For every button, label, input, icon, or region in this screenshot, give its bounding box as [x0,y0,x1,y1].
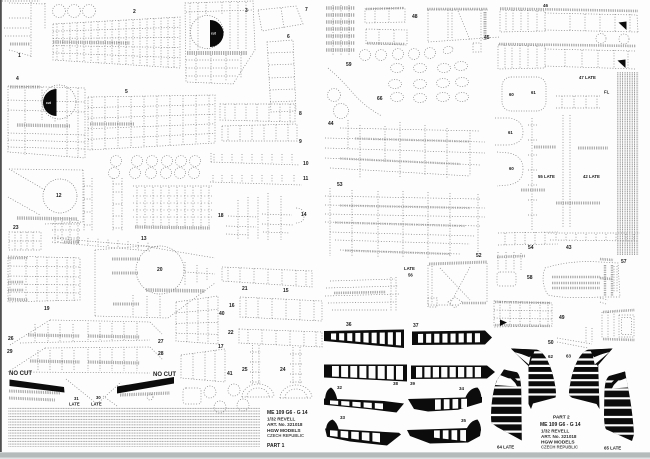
svg-text:12: 12 [56,193,62,199]
svg-text:21: 21 [242,286,248,292]
svg-text:ME 109 G6 - G 14: ME 109 G6 - G 14 [540,422,581,428]
svg-text:58: 58 [527,275,533,281]
svg-text:19: 19 [44,306,50,312]
svg-text:59: 59 [346,62,352,68]
svg-text:30: 30 [96,395,101,400]
svg-text:64 LATE: 64 LATE [497,445,514,450]
svg-text:1: 1 [18,53,21,59]
svg-text:36: 36 [346,322,352,328]
svg-text:38: 38 [393,381,399,386]
svg-text:45: 45 [484,35,490,41]
svg-text:65 LATE: 65 LATE [604,446,621,451]
svg-text:53: 53 [337,182,343,188]
svg-text:66: 66 [377,96,383,102]
svg-text:31: 31 [74,396,79,401]
svg-text:7: 7 [305,7,308,13]
svg-text:3: 3 [245,8,248,14]
svg-text:55 LATE: 55 LATE [538,174,555,179]
svg-text:16: 16 [229,303,235,309]
svg-text:22: 22 [228,330,234,336]
svg-text:ART. No. 321018: ART. No. 321018 [267,422,303,427]
svg-text:52: 52 [476,253,482,259]
svg-text:ART. No. 321018: ART. No. 321018 [541,434,577,439]
svg-text:47 LATE: 47 LATE [579,75,596,80]
svg-text:8: 8 [299,111,302,117]
svg-text:63: 63 [566,354,572,359]
svg-text:27: 27 [158,339,164,345]
svg-text:46: 46 [543,3,549,8]
svg-text:1/32 REVELL: 1/32 REVELL [541,429,570,434]
svg-text:LATE: LATE [69,402,80,407]
svg-text:14: 14 [301,212,307,218]
svg-text:60: 60 [509,92,514,97]
svg-text:20: 20 [157,267,163,273]
svg-text:42 LATE: 42 LATE [583,174,600,179]
svg-text:11: 11 [303,176,309,182]
svg-text:ME 109 G6 - G 14: ME 109 G6 - G 14 [267,410,308,416]
svg-text:PART 2: PART 2 [553,415,570,421]
svg-text:37: 37 [413,323,419,329]
svg-text:23: 23 [13,225,19,231]
svg-text:9: 9 [299,139,302,145]
svg-text:15: 15 [283,288,289,294]
svg-text:33: 33 [340,415,346,420]
svg-text:61: 61 [508,130,513,135]
svg-text:50: 50 [548,340,554,346]
svg-text:60: 60 [509,166,514,171]
svg-text:61: 61 [531,90,536,95]
svg-text:18: 18 [218,213,224,219]
svg-text:56: 56 [408,273,413,278]
svg-text:1/32 REVELL: 1/32 REVELL [267,417,296,422]
svg-text:28: 28 [158,351,164,357]
svg-text:10: 10 [303,161,309,167]
svg-text:25: 25 [242,367,248,373]
svg-text:LATE: LATE [91,402,102,407]
svg-text:62: 62 [548,354,554,359]
svg-text:5: 5 [125,89,128,95]
svg-text:35: 35 [461,418,467,423]
svg-text:24: 24 [280,367,286,373]
svg-text:17: 17 [218,344,224,350]
svg-text:PART 1: PART 1 [267,443,285,449]
svg-text:49: 49 [559,315,565,321]
svg-text:39: 39 [410,381,416,386]
svg-text:40: 40 [219,311,225,317]
svg-text:43: 43 [566,245,572,251]
svg-text:LATE: LATE [404,266,415,271]
svg-text:29: 29 [7,349,13,355]
svg-text:57: 57 [621,259,627,265]
svg-text:CZECH REPUBLIC: CZECH REPUBLIC [267,433,304,438]
svg-text:6: 6 [287,34,290,40]
svg-text:CZECH REPUBLIC: CZECH REPUBLIC [541,445,578,450]
svg-text:54: 54 [528,245,534,251]
svg-text:NO CUT: NO CUT [153,372,176,378]
svg-text:4: 4 [16,76,19,82]
svg-text:34: 34 [459,386,465,391]
svg-text:NO CUT: NO CUT [9,371,32,377]
svg-text:2: 2 [133,9,136,15]
svg-text:41: 41 [227,371,233,377]
svg-text:FL: FL [604,90,610,95]
svg-text:48: 48 [412,14,418,20]
svg-text:26: 26 [8,336,14,342]
svg-text:44: 44 [328,121,334,127]
svg-text:32: 32 [337,385,343,390]
svg-text:13: 13 [141,236,147,242]
